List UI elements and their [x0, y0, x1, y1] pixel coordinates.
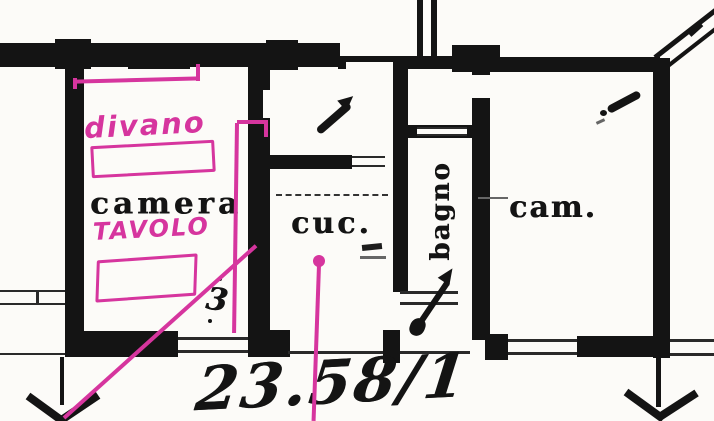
bottom-window-left-a [178, 337, 248, 340]
midroom-threshold-a [352, 156, 385, 158]
bagno-top-line-a [417, 127, 467, 129]
bottom-window-right-b [508, 352, 578, 355]
room-label-cucina: cuc. [291, 206, 372, 241]
divano-rectangle [90, 140, 216, 178]
scan-smudge-a [362, 243, 383, 251]
left-window-line-b [0, 303, 65, 305]
wall-bottom-camera [65, 331, 178, 357]
wall-top-pilaster-c [266, 40, 298, 70]
door-opening-cam [472, 75, 490, 98]
wall-bagno-cam [472, 63, 490, 340]
wall-left [65, 43, 84, 357]
wall-bottom-cam [577, 336, 668, 357]
section-line-cam [478, 197, 508, 199]
tavolo-rectangle [95, 253, 197, 302]
dimension-arrow-right-stem [656, 357, 661, 407]
door-swing-mark-cam-dot [600, 110, 607, 116]
right-window-line-a [670, 339, 714, 342]
room-label-bagno: bagno [426, 146, 458, 276]
wall-right [653, 58, 670, 358]
note-divano: divano [83, 105, 206, 145]
parcel-number: 23.58/1 [192, 341, 473, 421]
dimension-arrow-left-stem [60, 357, 64, 405]
marker-vertical-line [232, 123, 239, 333]
wall-bottom-corner [485, 334, 508, 360]
wall-camera-right [248, 43, 270, 332]
marker-topline-tick-right [196, 64, 200, 81]
scan-smudge-b [360, 256, 386, 259]
wall-stub-up-b [431, 0, 437, 58]
door-threshold-entrance [346, 62, 394, 69]
section-dashed-line [276, 194, 388, 196]
marker-bracket-tick [264, 120, 268, 137]
right-window-line-b [670, 353, 714, 356]
door-swing-mark-cam-tick [596, 118, 605, 125]
wall-stub-up-a [417, 0, 423, 58]
marker-topline [75, 76, 200, 83]
bottom-window-right-a [508, 339, 578, 342]
midroom-threshold-b [352, 165, 385, 167]
handwritten-mark-dot-b [208, 319, 212, 323]
room-label-cam: cam. [509, 190, 597, 225]
floor-plan-scan: 3 camera cuc. cam. bagno 23.58/1 divano … [0, 0, 714, 421]
left-window-tick [36, 290, 39, 305]
bagno-top-line-b [417, 134, 467, 136]
wall-cuc-bagno [393, 57, 408, 292]
note-tavolo: TAVOLO [92, 212, 210, 246]
wall-top-pilaster-b [128, 63, 190, 69]
door-opening-camera [263, 90, 272, 118]
left-window-line-a [0, 290, 65, 292]
marker-topline-tick-left [73, 78, 77, 89]
dimension-arrow-right-wing-b [656, 390, 699, 421]
left-baseline [0, 353, 65, 355]
bagno-threshold-a [400, 291, 458, 294]
door-swing-mark-cam [606, 90, 642, 114]
wall-midroom-bottom [270, 155, 352, 169]
